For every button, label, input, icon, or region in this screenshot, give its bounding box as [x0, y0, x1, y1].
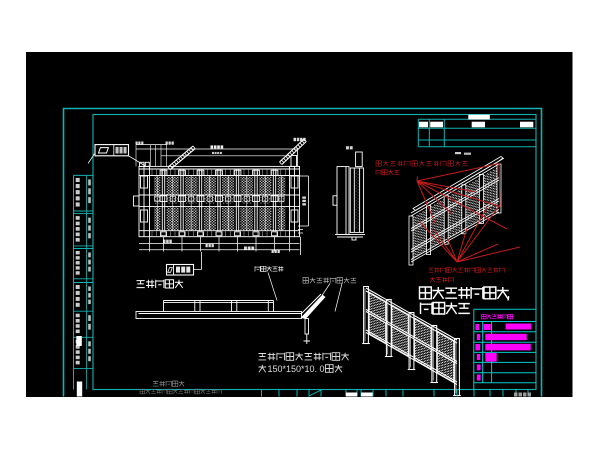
svg-text:150*150*10. 0: 150*150*10. 0	[268, 364, 325, 374]
